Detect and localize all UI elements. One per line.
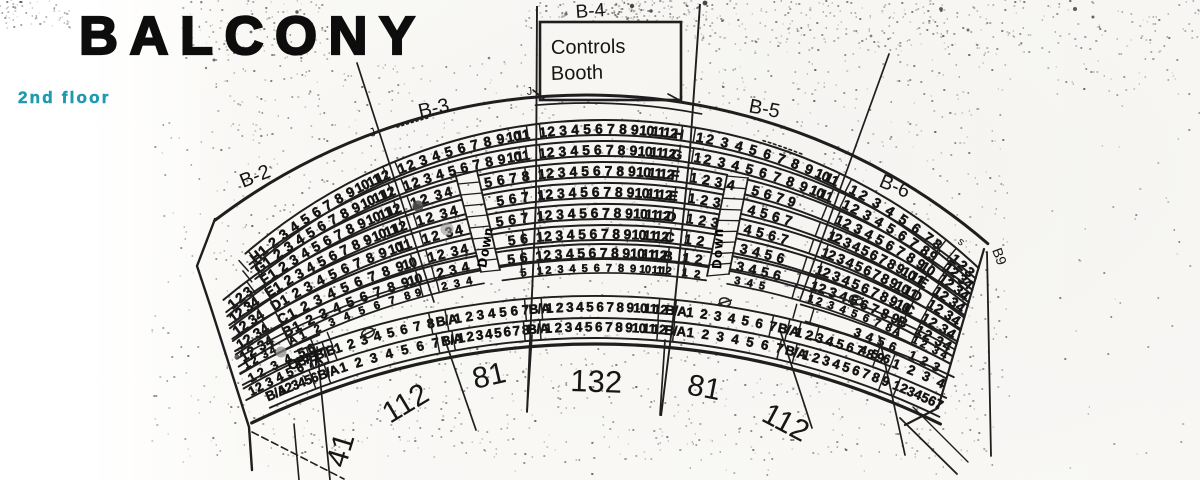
- svg-text:6: 6: [595, 319, 602, 334]
- svg-text:7: 7: [605, 319, 612, 334]
- svg-text:6: 6: [596, 299, 603, 314]
- svg-text:9: 9: [630, 263, 636, 275]
- svg-text:7: 7: [605, 164, 613, 179]
- svg-text:8: 8: [612, 227, 620, 242]
- svg-text:7: 7: [606, 299, 613, 314]
- svg-text:2nd floor: 2nd floor: [18, 88, 111, 107]
- svg-text:7: 7: [607, 122, 615, 137]
- svg-text:8: 8: [618, 263, 624, 275]
- svg-text:Booth: Booth: [551, 62, 604, 85]
- svg-text:5: 5: [581, 263, 587, 275]
- svg-text:6: 6: [589, 227, 597, 242]
- svg-text:8: 8: [615, 185, 623, 200]
- svg-text:6: 6: [593, 164, 601, 179]
- svg-text:Controls: Controls: [551, 36, 626, 59]
- svg-text:7: 7: [601, 227, 609, 242]
- svg-text:6: 6: [591, 206, 599, 221]
- svg-text:G: G: [671, 147, 683, 163]
- svg-text:81: 81: [685, 368, 724, 407]
- svg-text:7: 7: [606, 143, 614, 158]
- svg-text:BALCONY: BALCONY: [79, 6, 427, 66]
- svg-text:J: J: [526, 86, 533, 98]
- svg-text:8: 8: [613, 206, 621, 221]
- svg-text:6: 6: [595, 122, 603, 137]
- svg-text:7: 7: [602, 206, 610, 221]
- svg-text:6: 6: [592, 185, 600, 200]
- svg-text:132: 132: [570, 363, 623, 400]
- svg-text:B-4: B-4: [575, 0, 606, 23]
- svg-text:3: 3: [566, 300, 573, 315]
- svg-text:2: 2: [554, 320, 562, 335]
- svg-text:3: 3: [564, 320, 571, 335]
- svg-text:10: 10: [639, 263, 651, 276]
- svg-text:2: 2: [556, 300, 564, 315]
- svg-text:7: 7: [603, 185, 611, 200]
- svg-text:B/A: B/A: [664, 322, 688, 339]
- svg-text:6: 6: [594, 263, 600, 275]
- svg-text:6: 6: [594, 143, 602, 158]
- svg-text:7: 7: [606, 263, 612, 275]
